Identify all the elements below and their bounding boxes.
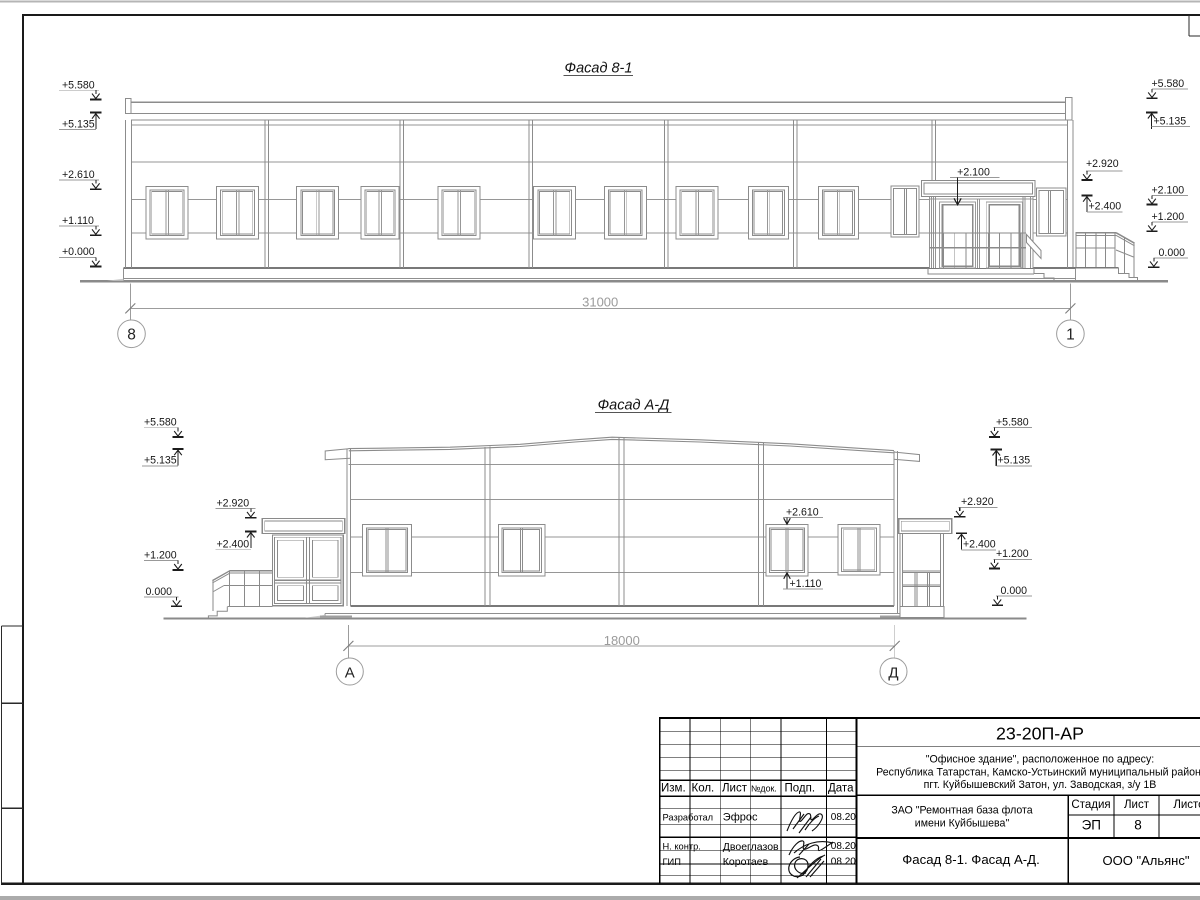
svg-text:Разработал: Разработал: [663, 813, 714, 823]
svg-text:0.000: 0.000: [146, 586, 173, 598]
svg-text:+1.200: +1.200: [996, 548, 1029, 560]
svg-text:08.20: 08.20: [831, 841, 856, 852]
svg-text:А: А: [345, 664, 355, 681]
svg-text:+2.400: +2.400: [963, 538, 996, 550]
svg-text:№док.: №док.: [751, 784, 777, 794]
svg-text:+1.200: +1.200: [144, 550, 177, 562]
svg-text:Двоеглазов: Двоеглазов: [723, 841, 779, 853]
svg-text:+0.000: +0.000: [62, 246, 95, 258]
svg-text:ЭП: ЭП: [1082, 818, 1101, 833]
svg-text:Лист: Лист: [722, 783, 748, 795]
svg-text:+2.100: +2.100: [1152, 184, 1185, 196]
svg-text:Стадия: Стадия: [1071, 799, 1110, 811]
svg-text:Подп.: Подп.: [785, 783, 816, 795]
svg-text:+5.580: +5.580: [62, 79, 95, 91]
svg-text:+2.610: +2.610: [62, 169, 95, 181]
svg-text:Дата: Дата: [828, 783, 854, 795]
svg-text:+2.920: +2.920: [217, 498, 250, 510]
svg-text:Изм.: Изм.: [661, 783, 686, 795]
svg-text:+5.135: +5.135: [144, 455, 177, 467]
svg-text:+2.400: +2.400: [1089, 200, 1122, 212]
svg-text:+2.920: +2.920: [961, 496, 994, 508]
svg-text:+5.135: +5.135: [62, 119, 95, 131]
svg-text:+5.135: +5.135: [1154, 116, 1187, 128]
svg-text:+2.920: +2.920: [1086, 158, 1119, 170]
svg-text:имени Куйбышева": имени Куйбышева": [915, 817, 1010, 829]
svg-text:0.000: 0.000: [1159, 247, 1186, 259]
svg-text:1: 1: [1066, 327, 1075, 344]
svg-text:пгт. Куйбышевский Затон, ул. З: пгт. Куйбышевский Затон, ул. Заводская, …: [924, 779, 1157, 791]
svg-text:+5.135: +5.135: [998, 454, 1031, 466]
svg-text:8: 8: [1134, 818, 1142, 833]
svg-text:ЗАО "Ремонтная база флота: ЗАО "Ремонтная база флота: [891, 804, 1032, 816]
svg-text:23-20П-АР: 23-20П-АР: [996, 723, 1084, 743]
svg-text:Фасад А-Д: Фасад А-Д: [598, 398, 670, 414]
svg-text:18000: 18000: [604, 633, 640, 648]
svg-text:"Офисное здание", расположенно: "Офисное здание", расположенное по адрес…: [926, 753, 1154, 765]
svg-text:Листов: Листов: [1173, 799, 1200, 811]
svg-text:ООО "Альянс": ООО "Альянс": [1103, 853, 1190, 868]
svg-text:Д: Д: [888, 664, 898, 681]
svg-text:Н. контр.: Н. контр.: [663, 842, 701, 852]
svg-text:Коротаев: Коротаев: [723, 856, 769, 868]
svg-text:Фасад 8-1: Фасад 8-1: [565, 60, 633, 76]
svg-text:0.000: 0.000: [1001, 585, 1028, 597]
svg-text:8: 8: [127, 327, 136, 344]
svg-text:+5.580: +5.580: [1152, 78, 1185, 90]
svg-text:+2.610: +2.610: [786, 506, 819, 518]
svg-text:Кол.: Кол.: [692, 783, 715, 795]
svg-text:ГИП: ГИП: [663, 857, 681, 867]
svg-text:Республика Татарстан, Камско-У: Республика Татарстан, Камско-Устьинский …: [876, 766, 1200, 778]
svg-text:31000: 31000: [582, 294, 618, 309]
svg-text:+2.400: +2.400: [217, 539, 250, 551]
svg-text:+1.110: +1.110: [790, 578, 822, 590]
svg-text:Фасад 8-1. Фасад А-Д.: Фасад 8-1. Фасад А-Д.: [902, 852, 1039, 867]
svg-text:08.20: 08.20: [831, 812, 856, 823]
svg-text:+1.110: +1.110: [62, 215, 94, 227]
svg-text:08.20: 08.20: [831, 857, 856, 868]
svg-text:+2.100: +2.100: [957, 166, 990, 178]
svg-text:+5.580: +5.580: [996, 416, 1029, 428]
svg-text:Лист: Лист: [1124, 799, 1150, 811]
svg-text:+1.200: +1.200: [1152, 211, 1185, 223]
svg-text:Эфрос: Эфрос: [723, 812, 758, 824]
svg-text:+5.580: +5.580: [144, 417, 177, 429]
